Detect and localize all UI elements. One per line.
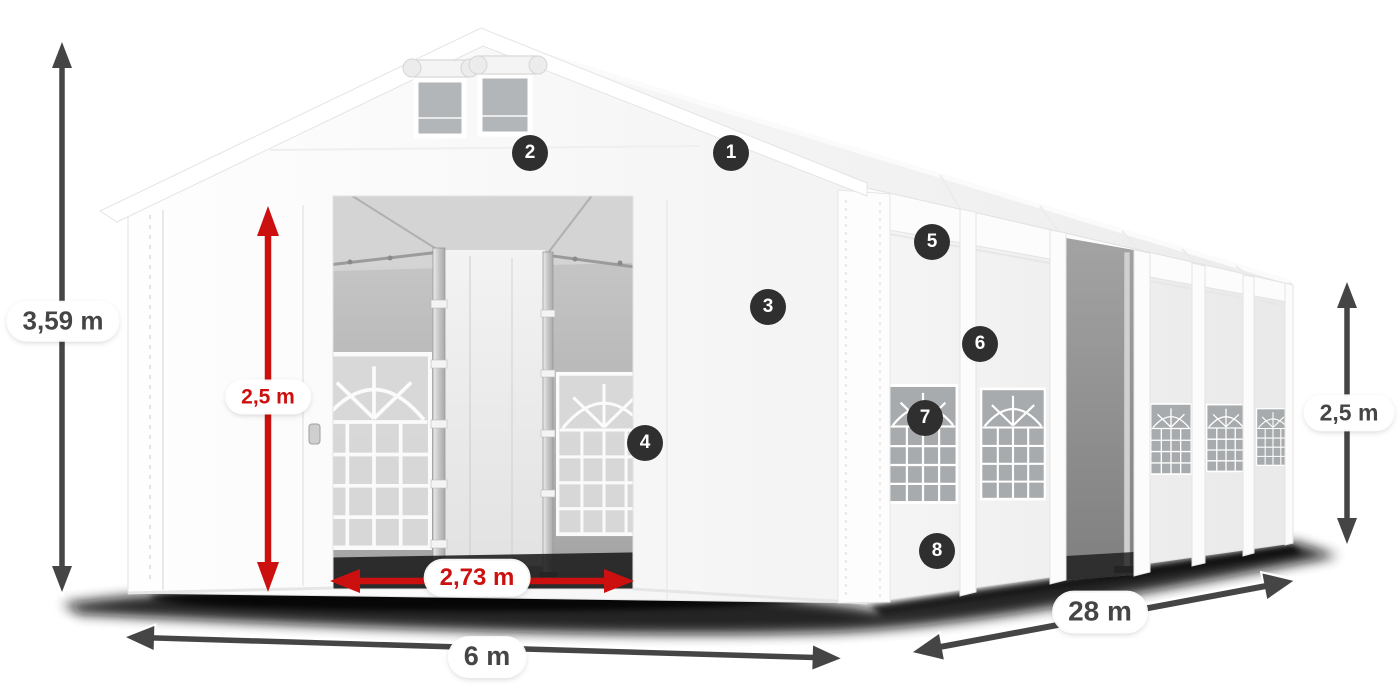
side-entrance-opening (1066, 238, 1138, 580)
callout-marker-1[interactable]: 1 (713, 135, 749, 171)
callout-marker-6[interactable]: 6 (962, 326, 998, 362)
tent-illustration (0, 0, 1400, 700)
dimension-label-door-width: 2,73 m (426, 561, 529, 595)
dimension-label-side-height: 2,5 m (1306, 396, 1393, 429)
dimension-label-length: 28 m (1054, 593, 1146, 632)
dimension-label-total-height: 3,59 m (9, 303, 118, 340)
tent-dimension-diagram: 3,59 m 2,5 m 2,73 m 6 m 28 m 2,5 m 1 2 3… (0, 0, 1400, 700)
callout-marker-5[interactable]: 5 (914, 224, 950, 260)
dimension-label-ground-width: 6 m (450, 638, 525, 676)
callout-marker-4[interactable]: 4 (627, 425, 663, 461)
corner-strip (838, 190, 890, 603)
callout-marker-8[interactable]: 8 (919, 533, 955, 569)
door-handle (309, 424, 320, 444)
callout-marker-7[interactable]: 7 (907, 400, 943, 436)
front-opening-interior (302, 185, 658, 593)
callout-marker-2[interactable]: 2 (512, 135, 548, 171)
callout-marker-3[interactable]: 3 (750, 289, 786, 325)
dimension-label-door-height: 2,5 m (227, 381, 309, 412)
